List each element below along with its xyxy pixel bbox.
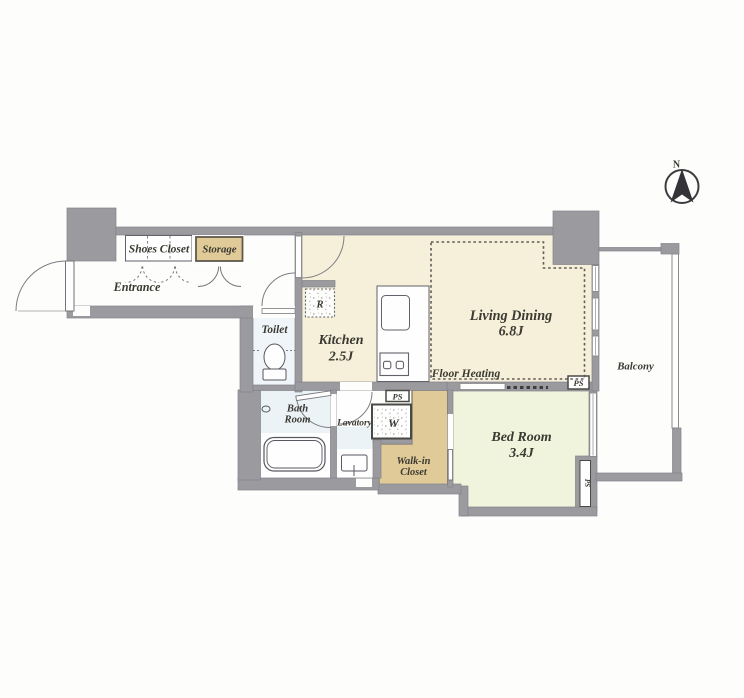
svg-text:W: W bbox=[388, 416, 400, 430]
svg-text:6.8J: 6.8J bbox=[499, 324, 525, 340]
svg-text:R: R bbox=[315, 300, 323, 311]
svg-text:2.5J: 2.5J bbox=[328, 350, 355, 365]
svg-text:Bed Room: Bed Room bbox=[490, 430, 551, 445]
svg-text:Entrance: Entrance bbox=[113, 280, 161, 294]
svg-text:Toilet: Toilet bbox=[262, 324, 289, 336]
svg-text:Storage: Storage bbox=[202, 244, 236, 256]
svg-text:Room: Room bbox=[284, 415, 311, 426]
svg-text:N: N bbox=[673, 160, 681, 171]
svg-text:Floor Heating: Floor Heating bbox=[431, 367, 501, 380]
svg-text:Closet: Closet bbox=[400, 467, 428, 478]
svg-text:Bath: Bath bbox=[286, 404, 308, 415]
svg-text:Shoes Closet: Shoes Closet bbox=[129, 244, 190, 256]
svg-text:Balcony: Balcony bbox=[616, 361, 654, 373]
svg-text:Kitchen: Kitchen bbox=[317, 333, 363, 348]
svg-text:Walk-in: Walk-in bbox=[397, 456, 431, 467]
svg-text:PS: PS bbox=[393, 392, 403, 402]
svg-text:PS: PS bbox=[574, 378, 584, 388]
svg-text:Living Dining: Living Dining bbox=[469, 308, 552, 324]
svg-text:3.4J: 3.4J bbox=[508, 446, 535, 461]
svg-text:Lavatory: Lavatory bbox=[336, 419, 373, 429]
svg-text:PS: PS bbox=[583, 479, 591, 487]
